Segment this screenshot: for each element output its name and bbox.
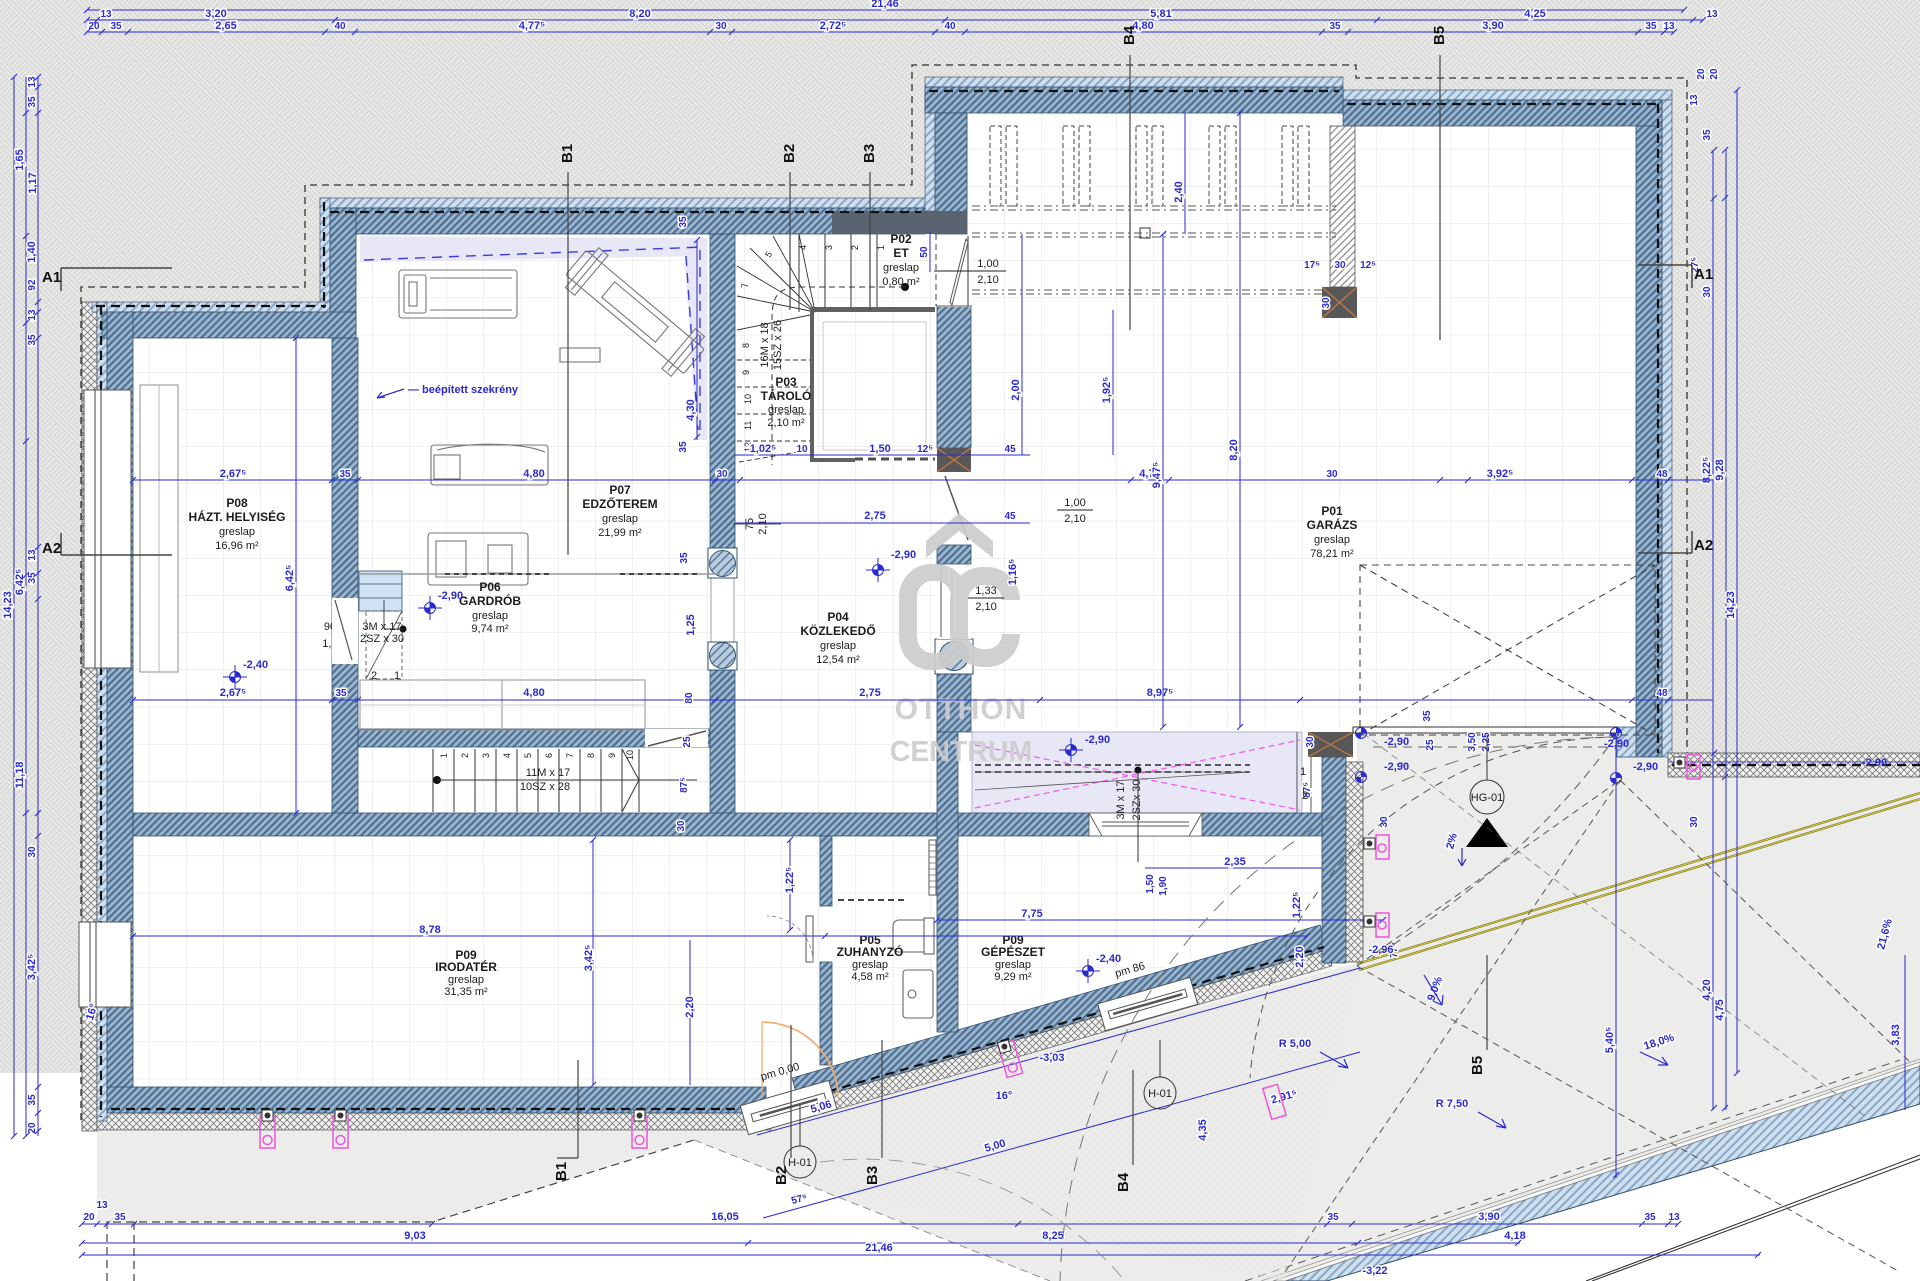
svg-text:5,40⁵: 5,40⁵ [1604, 1027, 1616, 1054]
svg-text:30: 30 [27, 846, 38, 858]
svg-text:17⁵: 17⁵ [1304, 260, 1320, 271]
svg-text:GARDRÓB: GARDRÓB [459, 593, 521, 608]
svg-text:1,40: 1,40 [26, 241, 38, 262]
svg-text:30: 30 [1326, 469, 1338, 480]
svg-text:35: 35 [27, 572, 38, 584]
svg-text:48: 48 [1656, 688, 1668, 699]
svg-text:35: 35 [114, 1212, 126, 1223]
svg-text:25: 25 [682, 736, 693, 748]
svg-text:OTTHON: OTTHON [895, 693, 1028, 726]
svg-text:3,83: 3,83 [1890, 1024, 1902, 1045]
svg-text:7,75: 7,75 [1021, 908, 1042, 920]
svg-text:35: 35 [335, 688, 347, 699]
svg-text:greslap: greslap [883, 262, 919, 274]
svg-text:-2,90: -2,90 [1085, 734, 1110, 746]
svg-text:greslap: greslap [1314, 534, 1350, 546]
svg-text:3,20: 3,20 [205, 8, 226, 20]
svg-text:GARÁZS: GARÁZS [1307, 517, 1358, 532]
svg-text:3,90: 3,90 [1482, 20, 1503, 32]
svg-text:45: 45 [1004, 444, 1016, 455]
svg-text:2,75: 2,75 [859, 687, 880, 699]
svg-text:1,02⁵: 1,02⁵ [750, 443, 777, 455]
svg-text:2,20: 2,20 [1294, 946, 1306, 967]
svg-text:KÖZLEKEDŐ: KÖZLEKEDŐ [800, 623, 875, 638]
svg-text:2,10: 2,10 [1064, 513, 1085, 525]
svg-text:2,67⁵: 2,67⁵ [220, 687, 247, 699]
svg-text:9: 9 [607, 753, 617, 758]
svg-text:35: 35 [1329, 21, 1341, 32]
svg-text:1: 1 [1300, 766, 1306, 778]
svg-text:3M x 17: 3M x 17 [362, 621, 401, 633]
svg-text:1,00: 1,00 [1064, 497, 1085, 509]
svg-text:13: 13 [27, 76, 38, 88]
svg-text:R 5,00: R 5,00 [1279, 1038, 1311, 1050]
svg-text:8,78: 8,78 [419, 924, 440, 936]
svg-text:6,42⁵: 6,42⁵ [14, 569, 26, 596]
svg-text:4: 4 [798, 245, 808, 250]
svg-text:TÁROLÓ: TÁROLÓ [761, 388, 812, 403]
svg-text:10: 10 [625, 750, 635, 760]
svg-text:H-01: H-01 [1148, 1088, 1172, 1100]
svg-text:B1: B1 [559, 144, 576, 163]
svg-text:15SZ x 26: 15SZ x 26 [772, 320, 784, 370]
svg-text:2: 2 [1302, 790, 1308, 802]
svg-text:1,65: 1,65 [14, 149, 26, 170]
svg-text:13: 13 [27, 549, 38, 561]
svg-text:40: 40 [334, 21, 346, 32]
svg-text:B1: B1 [553, 1162, 570, 1181]
svg-text:30: 30 [676, 820, 687, 832]
svg-text:1,17: 1,17 [27, 172, 39, 193]
svg-text:P07: P07 [609, 483, 631, 497]
svg-text:3,42⁵: 3,42⁵ [26, 954, 38, 981]
svg-text:2,35: 2,35 [1224, 856, 1245, 868]
svg-text:92: 92 [27, 279, 38, 291]
svg-text:-2,90: -2,90 [1633, 761, 1658, 773]
svg-text:35: 35 [110, 21, 122, 32]
svg-text:12,54 m²: 12,54 m² [816, 654, 860, 666]
svg-text:35: 35 [339, 469, 351, 480]
svg-text:10SZ x 28: 10SZ x 28 [520, 781, 570, 793]
svg-text:80: 80 [684, 692, 695, 704]
svg-text:A1: A1 [42, 269, 61, 286]
svg-text:20: 20 [1709, 68, 1720, 80]
svg-text:CENTRUM: CENTRUM [890, 736, 1033, 768]
svg-text:greslap: greslap [768, 404, 804, 416]
svg-text:30: 30 [1379, 816, 1390, 828]
svg-text:P06: P06 [479, 580, 501, 594]
svg-text:1,25: 1,25 [685, 614, 697, 635]
svg-text:B5: B5 [1431, 26, 1448, 45]
svg-text:4,35: 4,35 [1197, 1119, 1209, 1140]
svg-text:11M x 17: 11M x 17 [526, 767, 570, 779]
svg-text:21,46: 21,46 [865, 1242, 893, 1254]
svg-text:greslap: greslap [219, 526, 255, 538]
svg-text:9,74 m²: 9,74 m² [471, 623, 509, 635]
svg-text:31,35 m²: 31,35 m² [444, 986, 488, 998]
svg-text:7: 7 [740, 283, 750, 288]
svg-text:8,20: 8,20 [629, 8, 650, 20]
svg-text:B2: B2 [773, 1166, 790, 1185]
svg-text:4: 4 [502, 753, 512, 758]
svg-text:4,18: 4,18 [1504, 1230, 1525, 1242]
svg-text:0,80 m²: 0,80 m² [882, 276, 920, 288]
svg-text:30: 30 [1321, 297, 1332, 309]
svg-text:-2,90: -2,90 [891, 549, 916, 561]
svg-text:B4: B4 [1121, 25, 1138, 45]
svg-text:21,46: 21,46 [871, 0, 899, 10]
svg-text:45: 45 [1004, 511, 1016, 522]
svg-text:9,28: 9,28 [1714, 459, 1726, 480]
svg-text:-2,40: -2,40 [243, 659, 268, 671]
svg-text:78,21 m²: 78,21 m² [1310, 548, 1354, 560]
svg-text:5,81: 5,81 [1150, 8, 1171, 20]
svg-text:ZUHANYZÓ: ZUHANYZÓ [837, 944, 904, 959]
svg-text:35: 35 [27, 96, 38, 108]
svg-text:3,42⁵: 3,42⁵ [583, 945, 595, 972]
svg-text:1,22⁵: 1,22⁵ [784, 867, 796, 894]
svg-text:1,16⁵: 1,16⁵ [1007, 559, 1019, 586]
svg-text:6: 6 [544, 753, 554, 758]
svg-text:14,23: 14,23 [2, 591, 14, 619]
svg-text:40: 40 [944, 21, 956, 32]
svg-text:greslap: greslap [995, 959, 1031, 971]
svg-text:8,20: 8,20 [1228, 439, 1240, 460]
svg-text:2,40: 2,40 [1173, 181, 1185, 202]
svg-text:10: 10 [796, 444, 808, 455]
svg-text:3,90: 3,90 [1478, 1211, 1499, 1223]
svg-text:2,10: 2,10 [975, 601, 996, 613]
svg-text:30: 30 [1689, 816, 1700, 828]
svg-text:-2,90: -2,90 [1384, 736, 1409, 748]
svg-text:3M x 17: 3M x 17 [1115, 780, 1127, 819]
svg-text:16,96 m²: 16,96 m² [215, 540, 259, 552]
svg-text:30: 30 [1305, 736, 1316, 748]
svg-text:4,77⁵: 4,77⁵ [519, 20, 546, 32]
svg-text:13: 13 [1706, 9, 1718, 20]
svg-text:P04: P04 [827, 610, 849, 624]
svg-text:35: 35 [1702, 129, 1713, 141]
svg-text:9,03: 9,03 [404, 1230, 425, 1242]
svg-text:20: 20 [1696, 68, 1707, 80]
svg-text:12⁵: 12⁵ [1360, 260, 1376, 271]
svg-text:10: 10 [743, 394, 753, 404]
svg-text:30: 30 [1334, 260, 1346, 271]
svg-text:EDZŐTEREM: EDZŐTEREM [582, 496, 657, 511]
svg-text:HG-01: HG-01 [1471, 792, 1503, 804]
svg-text:35: 35 [679, 552, 690, 564]
svg-text:35: 35 [1645, 21, 1657, 32]
svg-text:1,00: 1,00 [977, 258, 998, 270]
svg-text:35: 35 [678, 441, 689, 453]
svg-text:-2,90: -2,90 [1862, 757, 1887, 769]
svg-text:2,72⁵: 2,72⁵ [820, 20, 847, 32]
svg-text:4,75: 4,75 [1714, 999, 1726, 1020]
svg-text:13: 13 [1689, 94, 1700, 106]
svg-text:5: 5 [523, 753, 533, 758]
svg-text:1,50: 1,50 [1145, 874, 1156, 894]
svg-text:2: 2 [460, 753, 470, 758]
svg-text:IRODATÉR: IRODATÉR [435, 959, 497, 974]
svg-text:30: 30 [716, 469, 728, 480]
svg-text:8,97⁵: 8,97⁵ [1147, 687, 1174, 699]
svg-text:48: 48 [1656, 469, 1668, 480]
svg-text:4,25: 4,25 [1524, 8, 1545, 20]
svg-text:2,10 m²: 2,10 m² [767, 417, 805, 429]
svg-text:greslap: greslap [852, 959, 888, 971]
svg-text:-2,90: -2,90 [1384, 761, 1409, 773]
svg-text:13: 13 [27, 309, 38, 321]
svg-text:B4: B4 [1115, 1172, 1132, 1192]
svg-text:4,20: 4,20 [1701, 979, 1713, 1000]
svg-text:greslap: greslap [602, 513, 638, 525]
svg-text:6,42⁵: 6,42⁵ [284, 565, 296, 592]
svg-text:1: 1 [876, 245, 886, 250]
svg-text:9,47⁵: 9,47⁵ [1151, 462, 1163, 489]
svg-text:25: 25 [1425, 739, 1436, 751]
svg-text:2,75: 2,75 [864, 510, 885, 522]
svg-text:-2,40: -2,40 [1096, 953, 1121, 965]
svg-text:35: 35 [1644, 1212, 1656, 1223]
svg-text:B2: B2 [781, 144, 798, 163]
svg-text:8,25: 8,25 [1042, 1230, 1063, 1242]
svg-text:2SZ x 30: 2SZ x 30 [360, 633, 404, 645]
svg-text:A1: A1 [1694, 266, 1713, 283]
svg-text:greslap: greslap [820, 640, 856, 652]
svg-text:-3,22: -3,22 [1362, 1265, 1387, 1277]
svg-text:1,22⁵: 1,22⁵ [1291, 892, 1303, 919]
svg-text:2: 2 [850, 245, 860, 250]
svg-text:A2: A2 [1694, 537, 1713, 554]
svg-text:2,20: 2,20 [684, 996, 696, 1017]
svg-text:A2: A2 [42, 540, 61, 557]
svg-text:50: 50 [919, 246, 930, 258]
svg-text:3,92⁵: 3,92⁵ [1487, 468, 1514, 480]
svg-text:16°: 16° [996, 1090, 1013, 1102]
svg-text:4,80: 4,80 [523, 687, 544, 699]
svg-text:4,80: 4,80 [523, 468, 544, 480]
svg-text:B5: B5 [1469, 1056, 1486, 1075]
svg-text:13: 13 [96, 1200, 108, 1211]
svg-text:11: 11 [743, 421, 753, 430]
svg-text:3: 3 [824, 245, 834, 250]
svg-text:20: 20 [27, 1122, 38, 1134]
svg-text:ET: ET [893, 246, 909, 260]
svg-text:B3: B3 [864, 1166, 881, 1185]
svg-text:35: 35 [1422, 710, 1433, 722]
svg-text:3: 3 [481, 753, 491, 758]
svg-text:9: 9 [741, 370, 751, 375]
svg-text:13: 13 [100, 9, 112, 20]
svg-text:P08: P08 [226, 496, 248, 510]
svg-text:3,50: 3,50 [1467, 732, 1478, 752]
svg-text:87⁵: 87⁵ [679, 777, 690, 793]
svg-text:16,05: 16,05 [711, 1211, 739, 1223]
svg-text:GÉPÉSZET: GÉPÉSZET [981, 944, 1046, 959]
svg-text:8,22⁵: 8,22⁵ [1701, 457, 1713, 484]
svg-text:P02: P02 [890, 232, 912, 246]
svg-text:P03: P03 [775, 375, 797, 389]
svg-text:2SZx 30: 2SZx 30 [1131, 780, 1143, 821]
svg-text:HÁZT. HELYISÉG: HÁZT. HELYISÉG [189, 509, 286, 524]
svg-text:8: 8 [741, 343, 751, 348]
svg-text:4,58 m²: 4,58 m² [851, 971, 889, 983]
svg-text:2,67⁵: 2,67⁵ [220, 468, 247, 480]
svg-text:greslap: greslap [472, 610, 508, 622]
svg-text:11,18: 11,18 [14, 762, 26, 789]
svg-text:8: 8 [586, 753, 596, 758]
svg-text:1,50: 1,50 [869, 443, 890, 455]
svg-text:— beépített szekrény: — beépített szekrény [408, 384, 519, 396]
svg-text:B3: B3 [861, 144, 878, 163]
svg-text:35: 35 [27, 1094, 38, 1106]
svg-text:P01: P01 [1321, 504, 1343, 518]
svg-text:16M x 18: 16M x 18 [759, 322, 771, 367]
svg-text:4,30: 4,30 [685, 399, 697, 420]
svg-text:-3,03: -3,03 [1039, 1052, 1064, 1064]
svg-text:35: 35 [678, 216, 689, 228]
svg-text:1,33: 1,33 [975, 585, 996, 597]
svg-text:2,65: 2,65 [215, 20, 236, 32]
svg-text:12⁵: 12⁵ [917, 444, 933, 455]
svg-text:1,90: 1,90 [1158, 876, 1169, 896]
svg-text:9,29 m²: 9,29 m² [994, 971, 1032, 983]
svg-text:-2,90: -2,90 [438, 590, 463, 602]
svg-text:greslap: greslap [448, 974, 484, 986]
svg-text:1: 1 [439, 753, 449, 758]
svg-text:2,10: 2,10 [977, 274, 998, 286]
svg-text:21,99 m²: 21,99 m² [598, 527, 642, 539]
svg-text:1,92⁵: 1,92⁵ [1101, 377, 1113, 404]
svg-text:-2,96: -2,96 [1368, 944, 1393, 956]
svg-text:H-01: H-01 [788, 1157, 812, 1169]
svg-text:2,00: 2,00 [1010, 379, 1022, 400]
svg-text:7: 7 [565, 753, 575, 758]
svg-text:14,23: 14,23 [1725, 591, 1737, 619]
svg-text:30: 30 [1702, 286, 1713, 298]
svg-text:R 7,50: R 7,50 [1436, 1098, 1468, 1110]
svg-text:30: 30 [715, 21, 727, 32]
